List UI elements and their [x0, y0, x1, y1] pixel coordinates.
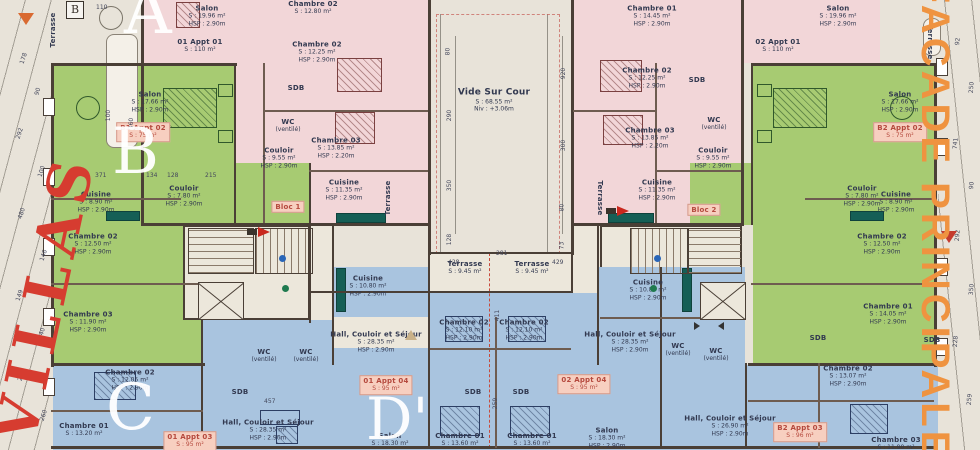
- room-label: CouloirS : 7.80 m²HSP : 2.90m: [844, 185, 881, 208]
- grid-marker-b: B: [66, 1, 84, 19]
- bed-furniture: [337, 58, 382, 92]
- staircase: [630, 228, 688, 274]
- room-label: CuisineS : 10.80 m²HSP : 2.90m: [350, 275, 387, 298]
- wall-segment: [51, 363, 205, 366]
- room-label: SDB: [810, 334, 827, 342]
- wall-segment: [655, 170, 741, 172]
- room-label: Chambre 01S : 13.60 m²: [435, 432, 485, 448]
- nightstand-furniture: [757, 84, 772, 97]
- nightstand-furniture: [218, 84, 233, 97]
- entry-flag-icon: [617, 206, 629, 216]
- dimension-value: 73: [558, 242, 565, 250]
- floor-plan: B A B C D' VILLAS FACADE PRINCIPALE Salo…: [0, 0, 980, 450]
- room-label: SDB: [232, 388, 249, 396]
- room-label: TerrasseS : 9.45 m²: [515, 260, 550, 276]
- dimension-value: 110: [96, 4, 107, 11]
- wall-segment: [263, 63, 265, 223]
- room-label: SDB: [288, 84, 305, 92]
- room-label: Chambre 02S : 12.80 m²: [288, 0, 338, 16]
- room-label: WC(ventilé): [701, 116, 726, 132]
- dimension-value: 300: [560, 140, 567, 151]
- room-label: SalonS : 17.66 m²HSP : 2.90m: [132, 91, 169, 114]
- wall-segment: [571, 253, 573, 293]
- table-furniture: [76, 96, 100, 120]
- dimension-value: 920: [560, 68, 567, 79]
- wall-segment: [571, 0, 574, 255]
- room-label: Vide Sur CourS : 68.55 m²Niv : +3.06m: [458, 87, 530, 112]
- bed-furniture: [850, 404, 888, 434]
- courtyard-dashed-outline: [436, 14, 560, 254]
- room-label: Chambre 01S : 13.60 m²: [507, 432, 557, 448]
- room-label: Terrasse: [596, 181, 604, 216]
- room-label: CouloirS : 7.80 m²HSP : 2.90m: [166, 185, 203, 208]
- room-label: SDB: [513, 388, 530, 396]
- room-label: Terrasse: [49, 13, 57, 48]
- room-label: Terrasse: [384, 181, 392, 216]
- door-arrow-icon: [694, 322, 700, 330]
- staircase: [188, 228, 254, 274]
- zone-green-b2-chambres: [753, 225, 935, 365]
- entry-flag-icon: [247, 229, 257, 235]
- room-label: Hall, Couloir et SéjourS : 28.35 m²HSP :…: [222, 419, 313, 442]
- kitchen-counter: [336, 268, 346, 312]
- center-axis-dashed: [489, 253, 490, 448]
- block-letter-a: A: [124, 0, 172, 44]
- dimension-value: 80: [558, 204, 565, 212]
- room-label: Chambre 02S : 12.25 m²HSP : 2.90m: [292, 41, 342, 64]
- door-arrow-icon: [718, 322, 724, 330]
- wall-segment: [748, 400, 934, 402]
- dimension-value: 457: [264, 398, 275, 405]
- utility-dot-icon: [654, 255, 661, 262]
- facade-principale-side-label: FACADE PRINCIPALE: [915, 0, 955, 450]
- room-label: WC(ventilé): [251, 348, 276, 364]
- entry-flag-icon: [258, 227, 270, 237]
- apartment-label: B2 Appt 03S : 96 m²: [773, 422, 827, 442]
- wall-segment: [573, 110, 655, 112]
- block-letter-b: B: [112, 120, 159, 184]
- wall-segment: [428, 0, 431, 255]
- block-letter-d-prime: D': [366, 390, 428, 448]
- bed-furniture: [163, 88, 217, 128]
- wall-segment: [309, 170, 428, 172]
- elevator-shaft: [198, 282, 244, 320]
- survey-triangle-icon: [18, 13, 34, 25]
- room-label: WC(ventilé): [703, 347, 728, 363]
- block-letter-c: C: [106, 376, 155, 440]
- room-label: CouloirS : 9.55 m²HSP : 2.90m: [261, 147, 298, 170]
- room-label: Chambre 02S : 12.50 m²HSP : 2.90m: [857, 233, 907, 256]
- staircase: [688, 228, 742, 274]
- dimension-value: 411: [494, 310, 501, 321]
- elevator-shaft: [700, 282, 746, 320]
- room-label: Chambre 02S : 12.10 m²HSP : 2.90m: [439, 319, 489, 342]
- room-label: WC(ventilé): [275, 118, 300, 134]
- nightstand-furniture: [757, 130, 772, 143]
- dimension-value: 350: [968, 283, 976, 295]
- room-label: CuisineS : 10.80 m²HSP : 2.90m: [630, 279, 667, 302]
- dimension-value: 80: [444, 48, 451, 56]
- room-label: SDB: [465, 388, 482, 396]
- dimension-value: 281: [496, 250, 507, 257]
- room-label: Chambre 02S : 13.07 m²HSP : 2.90m: [823, 365, 873, 388]
- utility-dot-icon: [282, 285, 289, 292]
- wall-segment: [234, 63, 236, 225]
- room-label: SDB: [689, 76, 706, 84]
- room-label: Hall, Couloir et SéjourS : 28.35 m²HSP :…: [584, 331, 675, 354]
- wall-segment: [751, 63, 753, 225]
- zone-entry-strip-right: [573, 225, 600, 293]
- room-label: 02 Appt 01S : 110 m²: [755, 38, 800, 54]
- dimension-value: 90: [968, 181, 976, 189]
- dimension-value: 429: [552, 259, 563, 266]
- apartment-label: 01 Appt 03S : 95 m²: [163, 431, 216, 450]
- room-label: CouloirS : 9.55 m²HSP : 2.90m: [695, 147, 732, 170]
- room-label: CuisineS : 8.90 m²HSP : 2.90m: [878, 191, 915, 214]
- room-label: Chambre 01S : 14.45 m²HSP : 2.90m: [627, 5, 677, 28]
- room-label: Chambre 01S : 13.20 m²: [59, 422, 109, 438]
- nightstand-furniture: [218, 130, 233, 143]
- wall-segment: [201, 320, 203, 448]
- wall-segment: [495, 317, 497, 448]
- room-label: WC(ventilé): [665, 342, 690, 358]
- room-label: Chambre 02S : 12.25 m²HSP : 2.90m: [622, 67, 672, 90]
- wall-segment: [430, 348, 571, 350]
- wall-segment: [751, 63, 937, 66]
- dimension-value: 350: [446, 180, 453, 191]
- apartment-label: Bloc 2: [687, 204, 720, 216]
- room-label: CuisineS : 11.35 m²HSP : 2.90m: [639, 179, 676, 202]
- wall-segment: [141, 223, 431, 226]
- utility-dot-icon: [279, 255, 286, 262]
- kitchen-counter: [682, 268, 692, 312]
- room-label: Chambre 02S : 12.10 m²HSP : 2.90m: [499, 319, 549, 342]
- dimension-value: 259: [966, 393, 974, 405]
- entry-arrow-icon: [405, 330, 417, 340]
- room-label: 01 Appt 01S : 110 m²: [177, 38, 222, 54]
- bed-furniture: [773, 88, 827, 128]
- room-label: SalonS : 19.96 m²HSP : 2.90m: [820, 5, 857, 28]
- room-label: Hall, Couloir et SéjourS : 26.90 m²HSP :…: [684, 415, 775, 438]
- room-label: Chambre 03S : 13.85 m²HSP : 2.20m: [625, 127, 675, 150]
- kitchen-counter: [336, 213, 386, 223]
- room-label: CuisineS : 11.35 m²HSP : 2.90m: [326, 179, 363, 202]
- dimension-value: 250: [968, 81, 976, 93]
- dimension-value: 259: [492, 398, 499, 409]
- dimension-value: 290: [446, 110, 453, 121]
- apartment-label: Bloc 1: [271, 201, 304, 213]
- wall-segment: [741, 0, 744, 225]
- room-label: SalonS : 19.96 m²HSP : 2.90m: [189, 5, 226, 28]
- dimension-value: 215: [205, 172, 216, 179]
- room-label: SalonS : 18.30 m²HSP : 2.90m: [589, 427, 626, 450]
- column: [43, 98, 55, 116]
- dimension-value: 428: [448, 259, 459, 266]
- dimension-value: 128: [167, 172, 178, 179]
- dimension-value: 128: [446, 234, 453, 245]
- room-label: WC(ventilé): [293, 348, 318, 364]
- wall-segment: [263, 110, 428, 112]
- kitchen-counter: [608, 213, 654, 223]
- wall-segment: [751, 283, 935, 285]
- room-label: Chambre 03S : 13.85 m²HSP : 2.20m: [311, 137, 361, 160]
- utility-dot-icon: [650, 285, 657, 292]
- room-label: Chambre 01S : 14.05 m²HSP : 2.90m: [863, 303, 913, 326]
- apartment-label: 02 Appt 04S : 95 m²: [557, 374, 610, 394]
- entry-flag-icon: [606, 208, 616, 214]
- wall-segment: [51, 63, 237, 66]
